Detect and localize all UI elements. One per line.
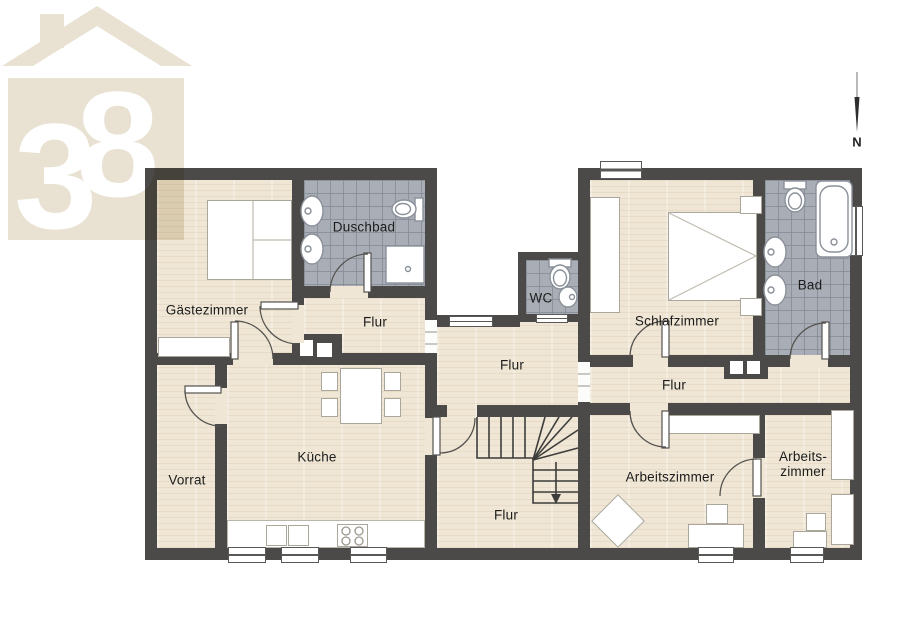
logo-38-haus: 3 8 bbox=[0, 0, 200, 250]
bed-lines bbox=[253, 201, 756, 300]
north-label: N bbox=[852, 135, 861, 150]
shower bbox=[386, 246, 424, 283]
duschbad-fixtures bbox=[301, 196, 424, 283]
door-leaf bbox=[185, 386, 221, 393]
logo-roof bbox=[2, 6, 192, 66]
wc-fixtures bbox=[549, 259, 577, 307]
door-leaf bbox=[364, 253, 371, 292]
room-label-kueche: Küche bbox=[297, 450, 336, 465]
door-arc bbox=[260, 306, 298, 344]
room-label-vorrat: Vorrat bbox=[168, 473, 205, 488]
logo-digit-8: 8 bbox=[76, 60, 159, 228]
room-label-flur-mitte: Flur bbox=[500, 358, 524, 373]
door-arc bbox=[185, 390, 221, 426]
door-arc bbox=[720, 459, 757, 496]
door-arc bbox=[790, 323, 826, 359]
door-leaf bbox=[433, 417, 440, 455]
room-label-gaestezimmer: Gästezimmer bbox=[166, 303, 248, 318]
room-label-arbeitszimmer: Arbeitszimmer bbox=[626, 470, 715, 485]
room-label-bad: Bad bbox=[798, 278, 823, 293]
door-arc bbox=[630, 411, 666, 447]
room-label-duschbad: Duschbad bbox=[333, 220, 395, 235]
sink bbox=[764, 275, 786, 305]
room-label-flur-rechts: Flur bbox=[662, 378, 686, 393]
room-label-line1: Arbeits- bbox=[779, 450, 827, 465]
door-arc bbox=[330, 254, 368, 292]
sink bbox=[301, 234, 323, 264]
door-leaves bbox=[185, 253, 829, 496]
door-leaf bbox=[231, 322, 238, 359]
door-arc bbox=[440, 418, 475, 453]
door-leaf bbox=[753, 459, 761, 496]
sink bbox=[301, 196, 323, 226]
sink bbox=[764, 237, 786, 267]
door-arcs bbox=[185, 254, 826, 496]
room-label-wc: WC bbox=[530, 291, 553, 306]
floor-plan: Gästezimmer Duschbad Flur WC Schlafzimme… bbox=[0, 0, 900, 636]
north-needle bbox=[855, 72, 860, 132]
door-leaf bbox=[662, 411, 669, 448]
door-leaf bbox=[261, 302, 298, 309]
stove-burners bbox=[342, 527, 363, 545]
room-label-flur-unten: Flur bbox=[494, 508, 518, 523]
stairs bbox=[477, 417, 578, 503]
room-label-line2: zimmer bbox=[779, 465, 827, 480]
door-arc bbox=[235, 321, 273, 359]
door-leaf bbox=[822, 322, 829, 359]
room-label-arbeitszimmer-klein: Arbeits- zimmer bbox=[779, 450, 827, 480]
room-label-schlafzimmer: Schlafzimmer bbox=[635, 314, 719, 329]
room-label-flur-links: Flur bbox=[363, 315, 387, 330]
